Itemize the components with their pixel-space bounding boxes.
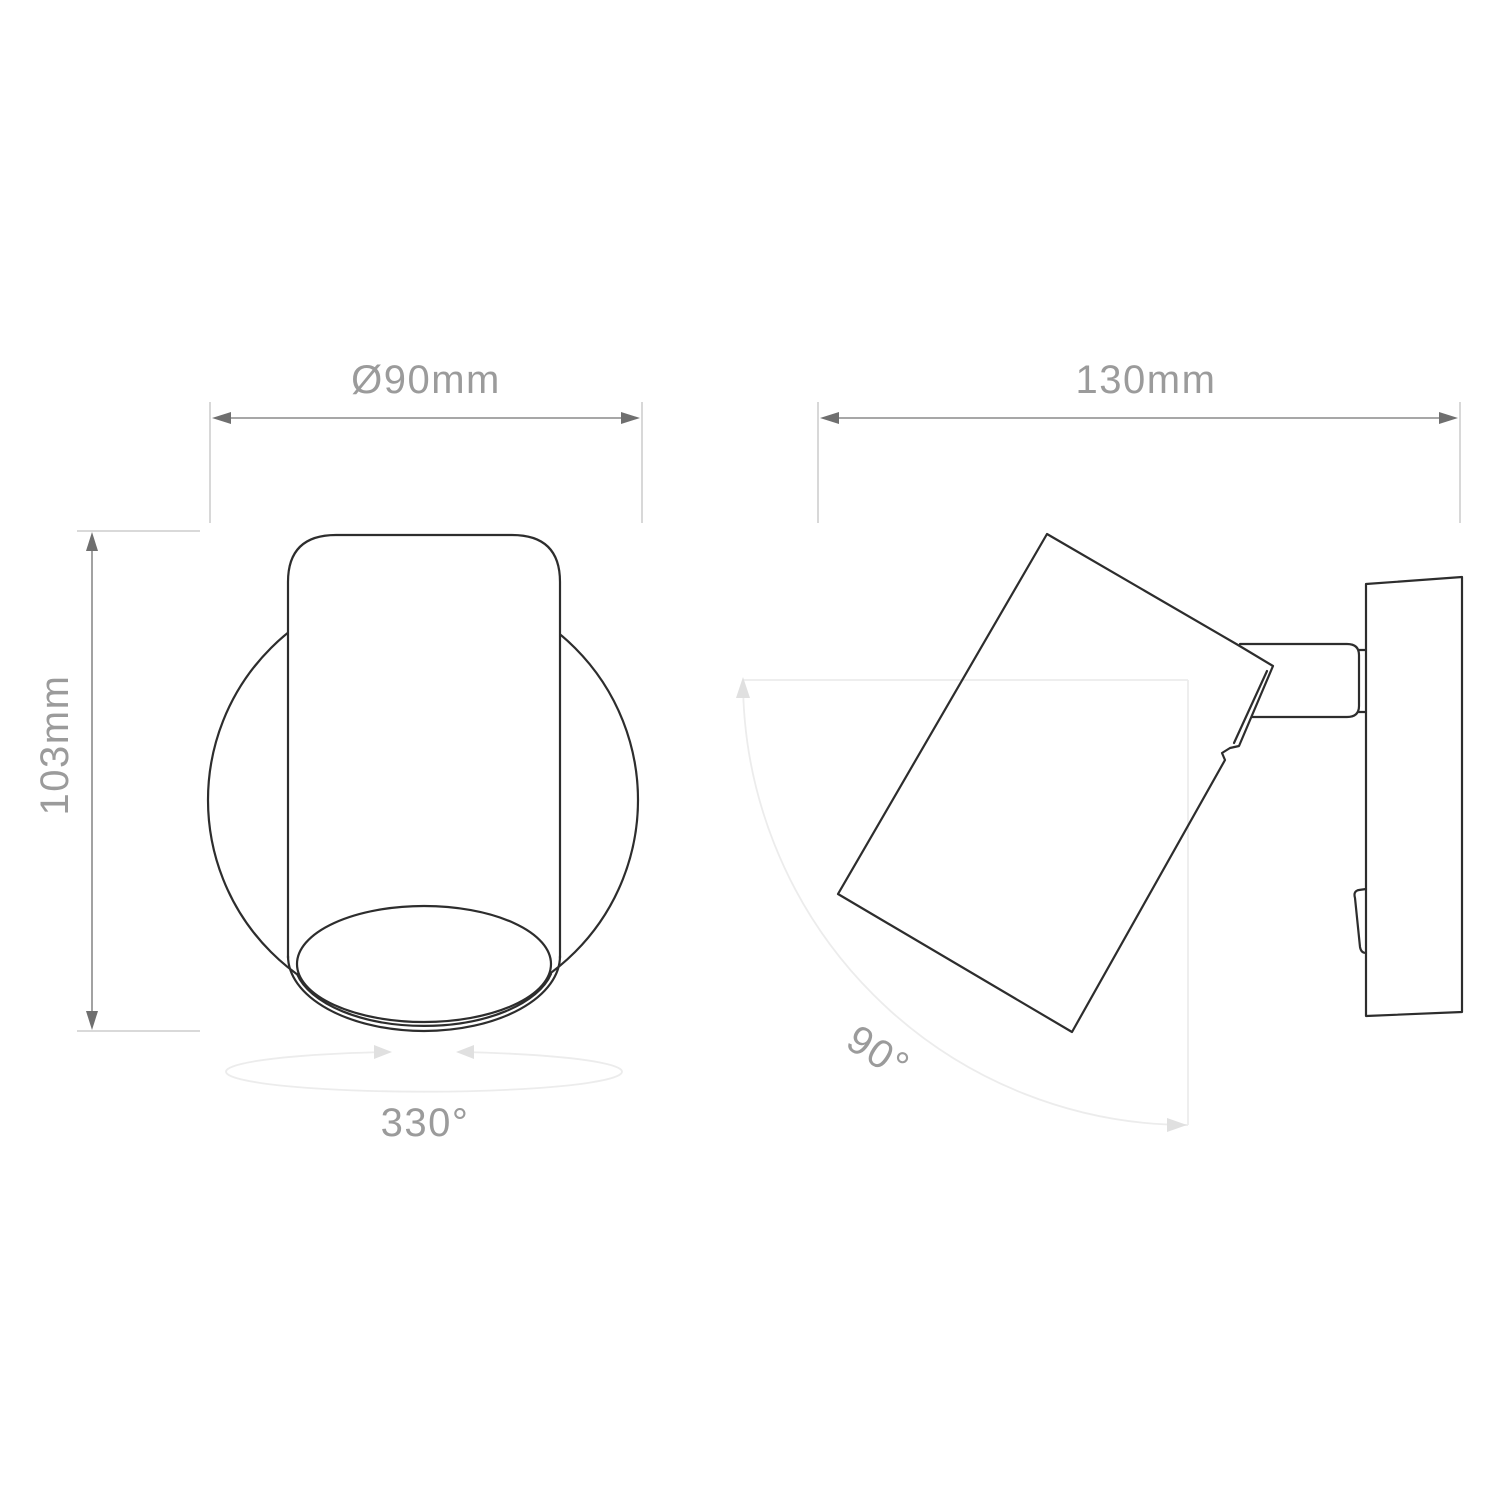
- dimension-arrowhead-up-icon: [86, 532, 98, 551]
- dimension-arrowhead-down-icon: [86, 1011, 98, 1030]
- spot-head-side-rim-line: [1234, 671, 1267, 743]
- rotation-angle-label: 330°: [381, 1101, 470, 1145]
- rotation-arrow-left-icon: [456, 1045, 474, 1059]
- rocker-switch: [1355, 889, 1367, 953]
- tilt-arc: [743, 680, 1188, 1125]
- dimension-arrowhead-right-icon: [1439, 412, 1458, 424]
- dimension-arrowhead-left-icon: [820, 412, 839, 424]
- pivot-arm: [1240, 644, 1359, 717]
- height-label: 103mm: [33, 675, 77, 816]
- wall-plate-side: [1366, 577, 1462, 1016]
- spot-head-side: [838, 534, 1273, 1032]
- spot-head-body: [288, 535, 560, 958]
- tilt-guide: [736, 677, 1188, 1132]
- spot-head-opening: [297, 906, 551, 1022]
- wall-spotlight-dimension-drawing: 330° Ø90mm 103mm: [0, 0, 1500, 1500]
- tilt-arrow-right-icon: [1167, 1118, 1187, 1132]
- side-view: 90° 130mm: [736, 358, 1462, 1132]
- front-view: 330° Ø90mm 103mm: [33, 358, 642, 1145]
- depth-label: 130mm: [1076, 358, 1217, 402]
- dimension-diameter: Ø90mm: [210, 358, 642, 523]
- dimension-depth: 130mm: [818, 358, 1460, 523]
- rotation-arrow-right-icon: [374, 1045, 392, 1059]
- dimension-arrowhead-right-icon: [621, 412, 640, 424]
- rotation-guide: [226, 1045, 622, 1092]
- rotation-ellipse: [226, 1052, 622, 1092]
- dimension-arrowhead-left-icon: [212, 412, 231, 424]
- diameter-label: Ø90mm: [351, 358, 501, 402]
- tilt-angle-label: 90°: [839, 1017, 917, 1089]
- dimension-height: 103mm: [33, 531, 200, 1031]
- technical-drawing-page: 330° Ø90mm 103mm: [0, 0, 1500, 1500]
